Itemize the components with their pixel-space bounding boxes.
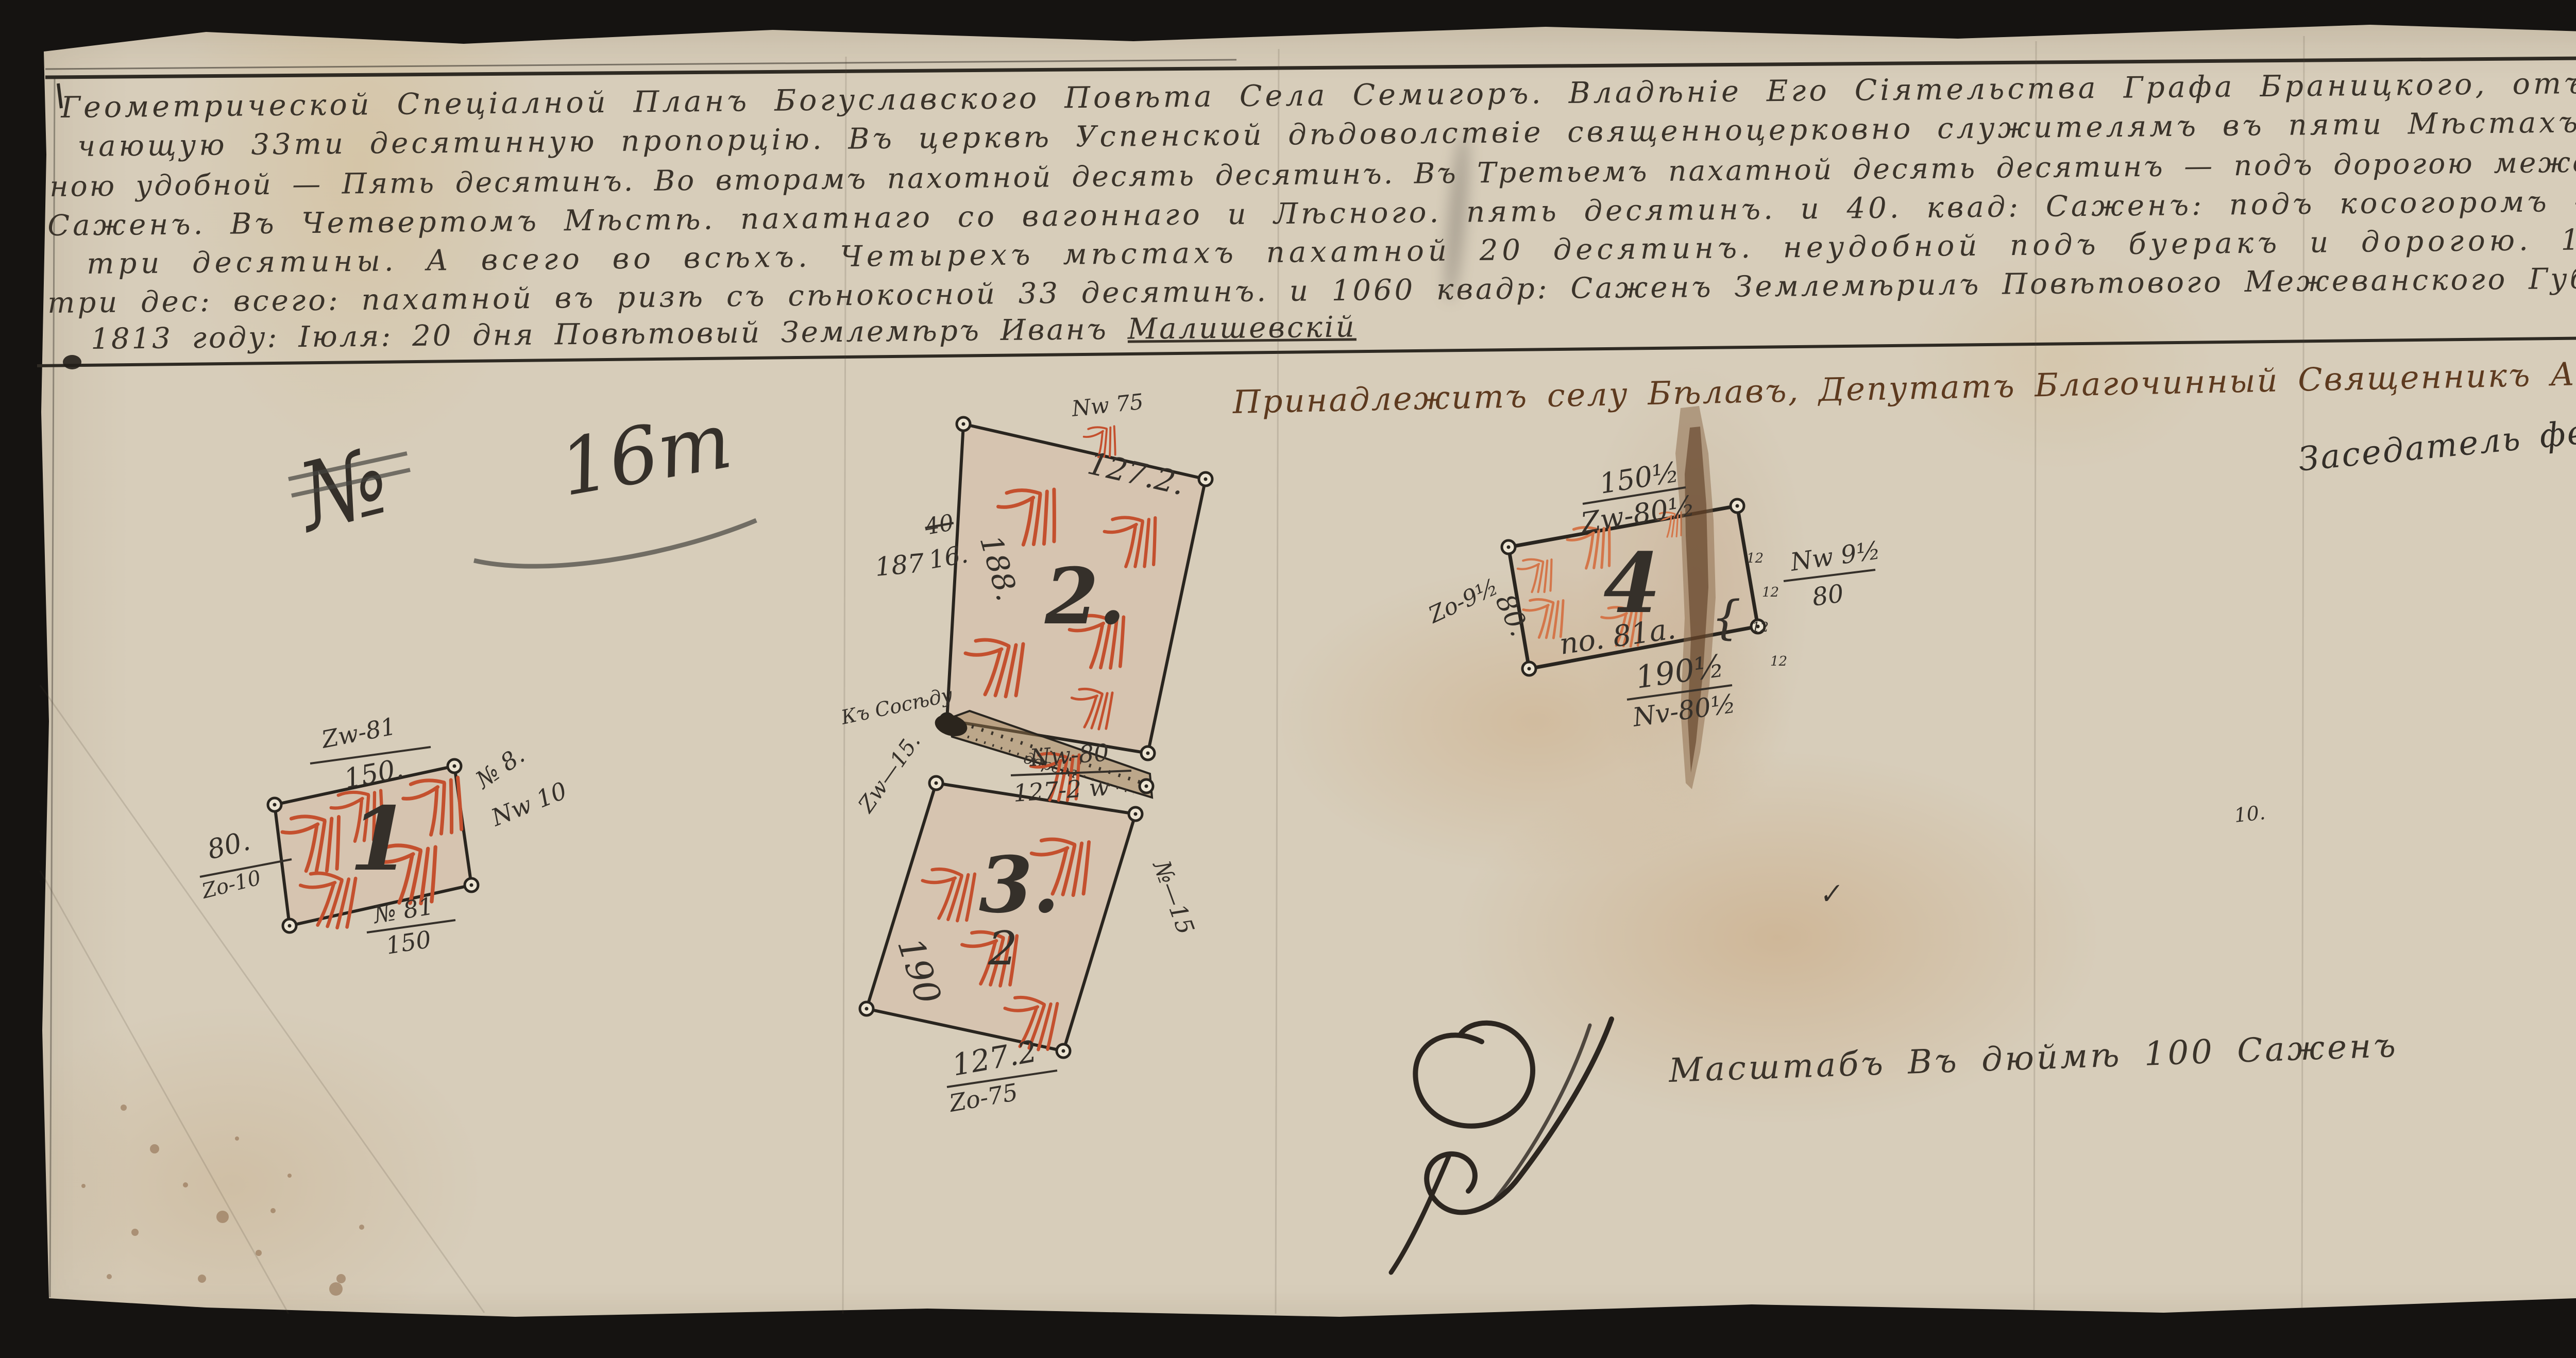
plot-1-top-length: Zw-81 (318, 712, 398, 754)
plot-4: 150½ Zw-80½ Nw 9½ 80 80. Zo-9½ no. 81a. … (1423, 406, 1882, 789)
plot-1-right-label: № 8. (470, 741, 530, 794)
plot-4-number: 4 (1603, 535, 1660, 632)
scanned-plan-sheet: Zw-81 150. № 8. Nw 10 80. Zo-10 № 81 150… (0, 0, 2576, 1358)
pencil-paraph: № (285, 427, 400, 553)
svg-text:12: 12 (1747, 551, 1764, 566)
plot-3-top-label-den: 127-2 w (1012, 773, 1110, 807)
plot-2-corner-label: Nw 75 (1070, 389, 1145, 421)
check-mark: ✓ (1816, 877, 1843, 911)
faint-number: 10. (2233, 801, 2266, 827)
svg-text:{: { (1711, 591, 1741, 645)
plot-3-right-diagonal-label: №—15 (1147, 856, 1200, 938)
plot-3-bottom-label-den: Zo-75 (946, 1078, 1020, 1117)
svg-text:12: 12 (1770, 654, 1787, 669)
svg-text:12: 12 (1752, 620, 1769, 635)
pencil-note: 16т (553, 396, 738, 514)
plot-3-top-label: Nw-80 (1028, 738, 1110, 772)
plot-1-bottom-label-den: 150 (384, 925, 433, 960)
plot-1: Zw-81 150. № 8. Nw 10 80. Zo-10 № 81 150… (198, 712, 570, 960)
pencil-annotations: № 16т (285, 396, 756, 566)
faint-marks: 10. ✓ (1816, 801, 2266, 911)
plot-3-number: 3. (979, 840, 1060, 930)
calligraphic-flourish (1391, 1019, 1612, 1272)
plot-4-far-left-label: Zo-9½ (1423, 573, 1502, 629)
surveyor-signature: Малишевскій (1127, 310, 1357, 346)
plot-2-outside-left: 187 (874, 548, 925, 582)
plot-4-right-label-den: 80 (1810, 579, 1845, 612)
plot-2-struck-number: 40 (922, 510, 956, 540)
plot-2-number: 2. (1044, 551, 1126, 642)
plot-1-left-label: 80. (205, 825, 253, 865)
plot-3-left-diagonal-label: Zw—15. (853, 729, 925, 818)
plot-1-number: 1 (349, 788, 410, 891)
svg-text:12: 12 (1762, 585, 1779, 600)
